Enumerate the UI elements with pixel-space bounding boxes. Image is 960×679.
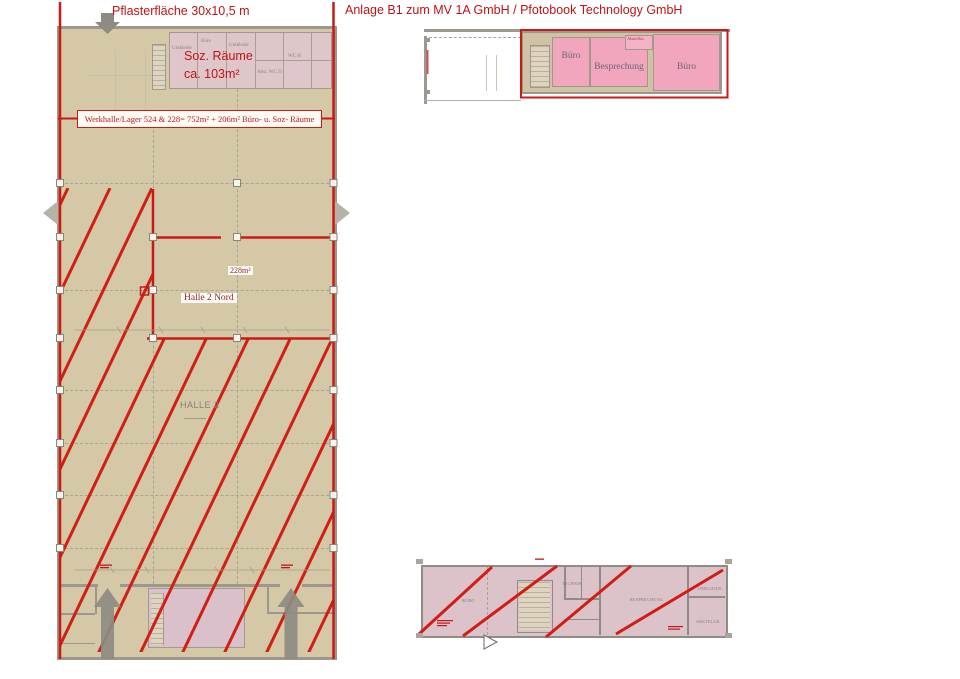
room-label-besprechung: BESPRECHUNG	[630, 597, 663, 602]
arrow-left-icon	[43, 201, 58, 225]
faint-line	[90, 75, 152, 76]
staircase	[530, 45, 550, 88]
wall	[599, 567, 601, 635]
wall	[267, 584, 269, 612]
room-label-besprechung: Besprechung	[590, 62, 648, 72]
wall	[564, 619, 601, 620]
floor-plan-page: Pflasterfläche 30x10,5 m Anlage B1 zum M…	[0, 0, 960, 679]
halle2-nord-label: Halle 2 Nord	[181, 293, 237, 303]
wall	[95, 584, 97, 614]
grid-line	[237, 89, 238, 584]
grid-line	[153, 130, 154, 584]
wall	[564, 598, 601, 600]
faint-line	[496, 55, 497, 91]
room-buero-left	[552, 37, 590, 87]
bottom-pink-room	[148, 588, 245, 648]
room-label-abstellraum: Abstellra.	[627, 36, 645, 41]
arrow-right-icon	[335, 201, 350, 225]
grid-line	[60, 290, 334, 291]
faint-line	[115, 50, 116, 112]
grid-line	[60, 548, 334, 549]
door-opening	[280, 584, 302, 587]
floor-edge	[424, 100, 521, 101]
area-228-label: 228m²	[228, 266, 253, 275]
staircase	[151, 593, 164, 645]
grid-line	[60, 390, 334, 391]
faint-line	[486, 55, 487, 91]
room-label-wc: WC H	[288, 54, 301, 59]
grid-line	[60, 495, 334, 496]
room-label-umkleide: Umkleide	[172, 46, 192, 51]
wall	[60, 613, 95, 615]
wall	[255, 60, 331, 61]
werkhalle-note: Werkhalle/Lager 524 & 228= 752m² + 206m²…	[77, 110, 322, 128]
grid-line	[429, 37, 521, 38]
wall-stub	[424, 90, 430, 94]
room-label-umkleide: UMKLEIDE	[698, 586, 722, 591]
room-label-buero-left: Büro	[552, 51, 590, 61]
wall	[687, 567, 689, 635]
wall	[60, 643, 95, 644]
grid-line	[487, 567, 488, 635]
staircase	[519, 582, 550, 630]
halle2-label: HALLE 2	[180, 400, 220, 410]
room-label-technik: TECHNIK	[562, 581, 582, 586]
soz-area-label-line2: ca. 103m²	[184, 67, 240, 81]
wall-stub	[424, 38, 430, 42]
door-opening	[98, 584, 120, 587]
room-label-buero: Büro	[201, 39, 211, 44]
room-label-buero-right: Büro	[653, 62, 720, 72]
staircase	[152, 44, 166, 90]
room-label-buero: BÜRO	[462, 598, 475, 603]
wall	[687, 596, 725, 598]
paving-label: Pflasterfläche 30x10,5 m	[112, 4, 250, 18]
room-label-abstellr: ABSTELLR.	[696, 619, 721, 624]
stair-enclosure	[517, 580, 553, 633]
faint-line	[145, 50, 146, 112]
room-label-abst-wc: Abst. WC D	[257, 70, 282, 75]
grid-line	[60, 443, 334, 444]
grid-line	[60, 183, 334, 184]
wall	[267, 612, 337, 614]
room-label-umkleide: Umkleide	[229, 43, 249, 48]
page-title: Anlage B1 zum MV 1A GmbH / Pfotobook Tec…	[345, 3, 682, 17]
soz-area-label-line1: Soz. Räume	[184, 49, 253, 63]
